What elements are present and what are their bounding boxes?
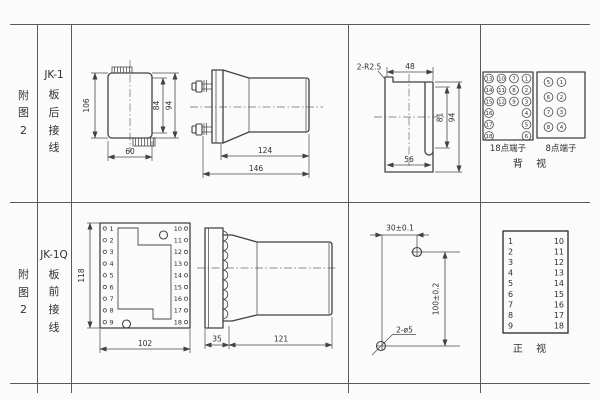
drilling-plan: 30±0.1 100±0.2 2-ø5: [370, 224, 460, 356]
radius-note: 2-R2.5: [357, 63, 382, 72]
svg-text:5: 5: [525, 122, 528, 128]
svg-text:2: 2: [560, 95, 563, 101]
svg-text:2: 2: [508, 247, 513, 256]
table-border-bottom: [10, 383, 590, 384]
svg-text:1: 1: [525, 76, 528, 82]
svg-text:7: 7: [508, 300, 513, 309]
svg-text:8: 8: [110, 307, 114, 315]
terminal: 1: [522, 74, 531, 83]
svg-text:11: 11: [174, 237, 182, 245]
terminal-8-caption: 8点端子: [546, 143, 577, 154]
svg-text:14: 14: [554, 279, 564, 288]
front-terminals-left: 1 2 3 4 5 6 7 8 9: [103, 225, 114, 327]
terminal: 2: [522, 86, 531, 95]
terminal: 8: [510, 86, 519, 95]
panel-cutout-drawing: 48 2-R2.5 81 94 56: [348, 24, 480, 202]
front-view: 1 2 3 4 5 6 7 8 9 10 11 12 13 14 15 16 1…: [77, 223, 190, 353]
terminal: 17: [485, 120, 494, 129]
svg-text:4: 4: [508, 269, 513, 278]
svg-text:9: 9: [110, 318, 114, 326]
svg-text:5: 5: [547, 80, 550, 86]
front-view-caption: 正 视: [513, 342, 551, 355]
figure-label-row2: 附图2: [17, 266, 30, 319]
dim-60: 60: [125, 147, 135, 156]
rear-view: 106 84 94 60: [82, 60, 179, 161]
terminal: 5: [522, 120, 531, 129]
dim-106: 106: [82, 98, 91, 113]
svg-text:12: 12: [174, 248, 182, 256]
model-label-cell-row2: JK-1Q 板前接线: [37, 202, 71, 383]
dim-118: 118: [77, 268, 86, 283]
mounting-flange: [212, 70, 223, 143]
radius-leader: [378, 71, 385, 79]
svg-text:9: 9: [508, 322, 513, 331]
svg-text:12: 12: [554, 258, 564, 267]
svg-text:15: 15: [486, 99, 493, 105]
figure-label-cell-row2: 附图2: [10, 202, 37, 383]
figure-label-row1: 附图2: [17, 87, 30, 140]
svg-text:1: 1: [508, 237, 513, 246]
terminal: 3: [557, 108, 566, 117]
svg-text:8: 8: [512, 88, 516, 94]
case-body: [223, 70, 309, 143]
rear-view-caption: 背 视: [513, 157, 551, 170]
terminal-rear-views: 13 10 7 1 14 11 8 2 15 12 9 3 16 4 17 5 …: [480, 24, 590, 202]
svg-text:10: 10: [554, 237, 564, 246]
svg-text:4: 4: [525, 111, 529, 117]
front-terminals-right: 10 11 12 13 14 15 16 17 18: [174, 225, 188, 327]
svg-text:17: 17: [174, 307, 182, 315]
svg-text:1: 1: [110, 225, 114, 233]
svg-text:18: 18: [486, 134, 493, 140]
svg-text:18: 18: [554, 322, 564, 331]
dim-81: 81: [436, 113, 445, 123]
svg-text:17: 17: [554, 311, 564, 320]
svg-text:9: 9: [512, 99, 516, 105]
svg-text:15: 15: [174, 283, 182, 291]
svg-text:1: 1: [560, 80, 563, 86]
front-terminal-table: 1 2 3 4 5 6 7 8 9 10 11 12 13 14 15 16 1…: [503, 231, 568, 355]
dim-94-cutout: 94: [448, 113, 457, 123]
svg-text:14: 14: [174, 272, 182, 280]
dim-56: 56: [404, 155, 414, 164]
svg-text:11: 11: [554, 247, 564, 256]
svg-text:16: 16: [554, 300, 564, 309]
svg-text:3: 3: [110, 248, 114, 256]
svg-text:17: 17: [486, 122, 493, 128]
row2-views-drawing: 1 2 3 4 5 6 7 8 9 10 11 12 13 14 15 16 1…: [71, 202, 348, 383]
terminal-18-caption: 18点端子: [490, 143, 527, 154]
terminal: 6: [522, 132, 531, 141]
terminal: 4: [522, 109, 531, 118]
mounting-stud-bottom: [192, 123, 212, 135]
hole-leader: [372, 334, 393, 355]
row1-views-drawing: 106 84 94 60: [71, 24, 348, 202]
terminal: 18: [485, 132, 494, 141]
svg-text:5: 5: [508, 279, 513, 288]
dim-124: 124: [258, 146, 273, 155]
svg-text:8: 8: [508, 311, 513, 320]
panel-cutout: 48 2-R2.5 81 94 56: [357, 62, 462, 172]
dim-94: 94: [165, 101, 174, 111]
svg-text:6: 6: [508, 290, 513, 299]
wiring-type-row1: 板后接线: [48, 86, 61, 156]
mounting-stud-top: [192, 80, 212, 92]
dim-84: 84: [152, 101, 161, 111]
svg-text:6: 6: [525, 134, 529, 140]
svg-text:11: 11: [498, 88, 505, 94]
svg-text:14: 14: [486, 88, 493, 94]
svg-text:8: 8: [547, 125, 551, 131]
svg-text:7: 7: [512, 76, 515, 82]
case-body: [223, 235, 332, 321]
terminal: 10: [497, 74, 506, 83]
svg-text:6: 6: [547, 95, 551, 101]
terminal: 12: [497, 97, 506, 106]
dim-30: 30±0.1: [386, 224, 414, 233]
terminal: 6: [544, 93, 553, 102]
terminal: 1: [557, 78, 566, 87]
svg-text:16: 16: [174, 295, 182, 303]
svg-text:10: 10: [498, 76, 505, 82]
dim-121: 121: [274, 335, 289, 344]
svg-text:18: 18: [174, 318, 182, 326]
terminal: 14: [485, 86, 494, 95]
mounting-hole-bottom: [123, 320, 131, 328]
terminal: 16: [485, 109, 494, 118]
dim-48: 48: [405, 62, 415, 71]
top-terminal-block: [112, 67, 132, 73]
terminal: 9: [510, 97, 519, 106]
terminal: 5: [544, 78, 553, 87]
svg-text:10: 10: [174, 225, 182, 233]
svg-text:13: 13: [486, 76, 493, 82]
svg-text:4: 4: [560, 125, 564, 131]
dimension-drawing-sheet: 附图2 JK-1 板后接线 附图2 JK-1Q 板前接线 106 84: [0, 0, 600, 400]
model-name-row2: JK-1Q: [40, 249, 68, 261]
svg-text:6: 6: [110, 283, 114, 291]
terminal: 11: [497, 86, 506, 95]
terminal: 2: [557, 93, 566, 102]
svg-text:16: 16: [486, 111, 493, 117]
svg-text:15: 15: [554, 290, 564, 299]
wiring-type-row2: 板前接线: [48, 266, 61, 336]
front-side-view: 35 121: [197, 228, 337, 349]
svg-text:12: 12: [498, 99, 505, 105]
model-label-cell-row1: JK-1 板后接线: [37, 24, 71, 202]
svg-text:2: 2: [110, 237, 114, 245]
terminal: 4: [557, 123, 566, 132]
svg-text:7: 7: [110, 295, 114, 303]
terminal: 8: [544, 123, 553, 132]
dim-100: 100±0.2: [432, 283, 441, 316]
dim-35: 35: [212, 335, 222, 344]
dim-146: 146: [249, 164, 264, 173]
side-view: 124 146: [190, 70, 323, 178]
svg-text:2: 2: [525, 88, 528, 94]
terminal: 3: [522, 97, 531, 106]
drilling-plan-drawing: 30±0.1 100±0.2 2-ø5: [348, 202, 480, 383]
svg-text:3: 3: [560, 110, 563, 116]
inner-body-outline: [118, 228, 171, 319]
terminal: 7: [510, 74, 519, 83]
svg-text:7: 7: [547, 110, 550, 116]
svg-text:3: 3: [525, 99, 528, 105]
figure-label-cell-row1: 附图2: [10, 24, 37, 202]
front-terminal-table-drawing: 1 2 3 4 5 6 7 8 9 10 11 12 13 14 15 16 1…: [480, 202, 590, 383]
terminal: 15: [485, 97, 494, 106]
dim-102: 102: [138, 339, 153, 348]
terminal: 7: [544, 108, 553, 117]
svg-text:13: 13: [174, 260, 182, 268]
model-name-row1: JK-1: [44, 69, 63, 81]
svg-text:13: 13: [554, 269, 564, 278]
svg-text:5: 5: [110, 272, 114, 280]
terminal: 13: [485, 74, 494, 83]
terminal-plate: [205, 228, 223, 328]
terminal-bumps: [223, 231, 228, 319]
mounting-hole-top: [160, 231, 168, 239]
terminals-8: 5 1 6 2 7 3 8 4 8点端子: [537, 72, 585, 154]
svg-text:3: 3: [508, 258, 513, 267]
hole-size-note: 2-ø5: [396, 326, 413, 335]
terminals-18: 13 10 7 1 14 11 8 2 15 12 9 3 16 4 17 5 …: [483, 72, 533, 154]
svg-text:4: 4: [110, 260, 114, 268]
